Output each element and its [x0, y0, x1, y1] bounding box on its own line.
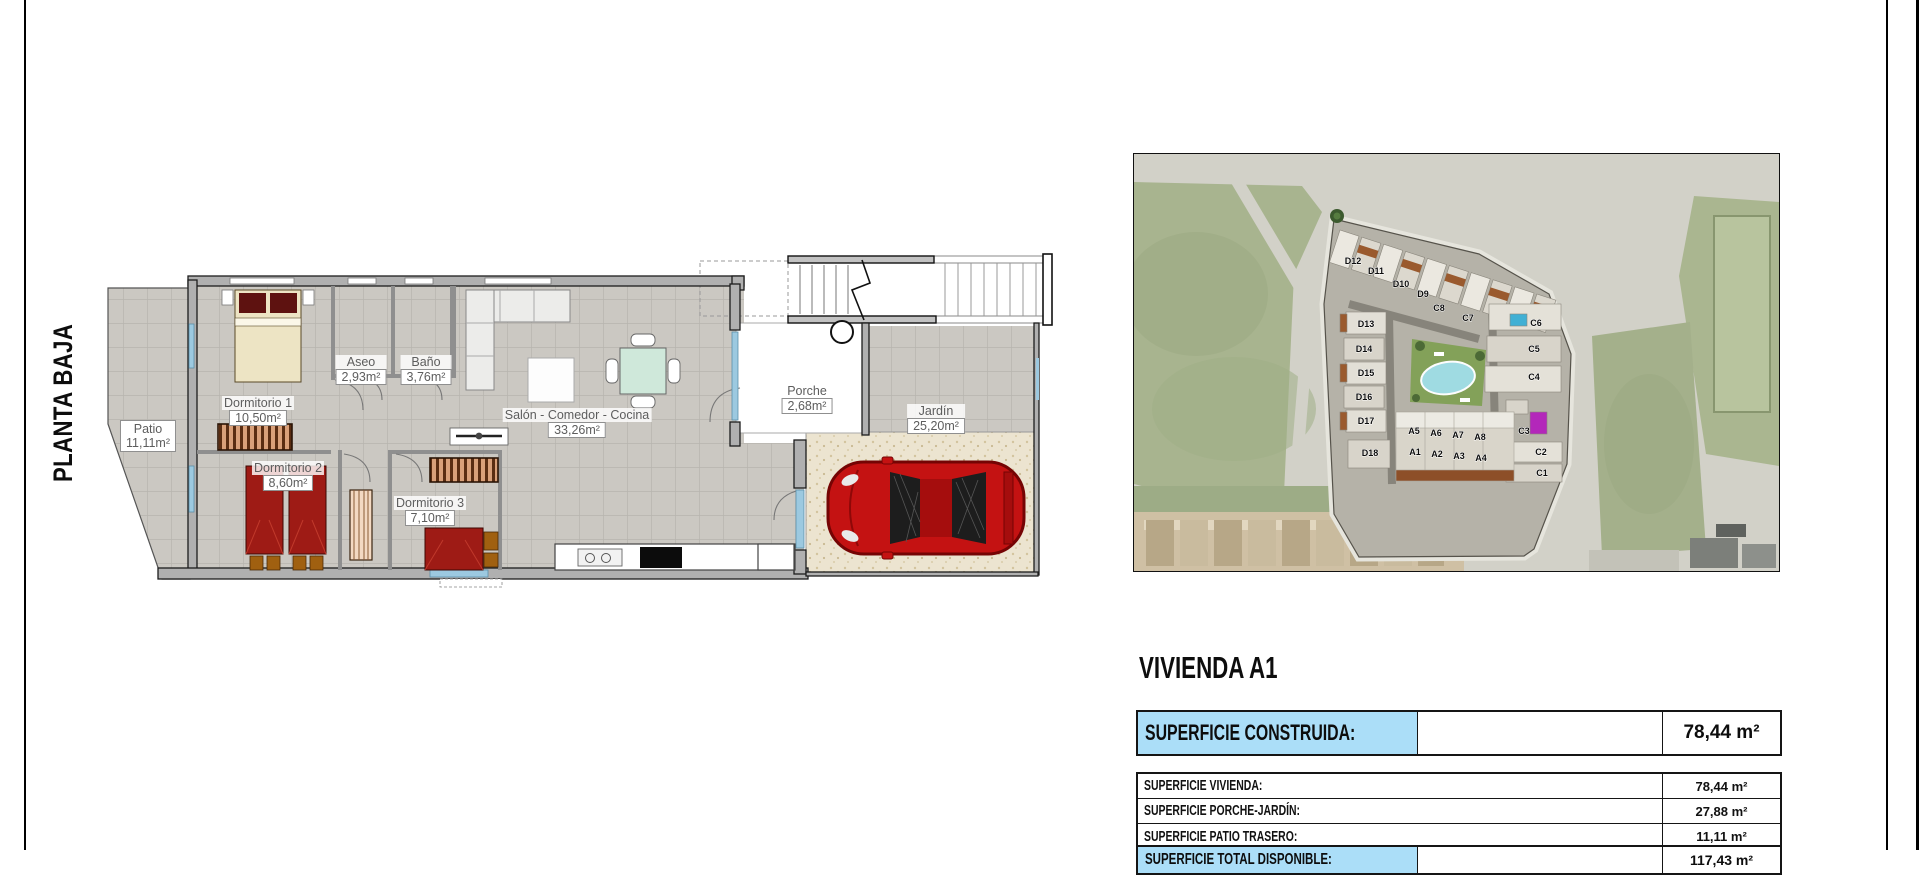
- svg-text:A6: A6: [1430, 428, 1442, 438]
- svg-text:A5: A5: [1408, 426, 1420, 436]
- svg-text:C1: C1: [1536, 468, 1548, 478]
- small-pool: [1510, 314, 1527, 326]
- svg-text:D17: D17: [1358, 416, 1375, 426]
- room-label-bano: Baño3,76m²: [401, 355, 452, 385]
- superficie-construida-row: SUPERFICIE CONSTRUIDA: 78,44 m²: [1136, 710, 1782, 756]
- magenta-building: [1530, 412, 1547, 434]
- wardrobe-icon: [430, 458, 498, 482]
- svg-text:D11: D11: [1368, 266, 1384, 276]
- svg-text:C8: C8: [1433, 303, 1445, 313]
- bed-double-icon: [222, 290, 314, 382]
- svg-text:D10: D10: [1393, 279, 1410, 289]
- stove-icon: [640, 547, 682, 568]
- superficie-total-value: 117,43 m²: [1662, 847, 1780, 873]
- bed-single-icon: [425, 528, 498, 570]
- svg-text:D9: D9: [1417, 289, 1429, 299]
- surface-breakdown-table: SUPERFICIE VIVIENDA: 78,44 m² SUPERFICIE…: [1136, 772, 1782, 851]
- window-blue: [189, 324, 194, 368]
- room-label-patio: Patio11,11m²: [120, 420, 176, 452]
- site-plan-aerial-image: D12 D11 D10 D9 C8 C7 D13 D14 D15 D16 D17…: [1133, 153, 1780, 572]
- room-label-aseo: Aseo2,93m²: [336, 355, 387, 385]
- table-row: SUPERFICIE VIVIENDA: 78,44 m²: [1138, 774, 1780, 799]
- svg-text:D15: D15: [1358, 368, 1375, 378]
- courtyard: [1410, 339, 1486, 406]
- wardrobe-icon: [218, 424, 292, 450]
- svg-text:A7: A7: [1452, 430, 1464, 440]
- room-label-dormitorio2: Dormitorio 28,60m²: [252, 461, 324, 491]
- row-spacer: [1418, 712, 1662, 754]
- svg-text:A1: A1: [1409, 447, 1421, 457]
- svg-text:C6: C6: [1530, 318, 1542, 328]
- svg-text:D12: D12: [1345, 256, 1362, 266]
- svg-text:D13: D13: [1358, 319, 1375, 329]
- svg-text:C3: C3: [1518, 426, 1530, 436]
- svg-text:D18: D18: [1362, 448, 1379, 458]
- drawing-sheet: { "sheet": { "plan_label": "PLANTA BAJA"…: [0, 0, 1920, 850]
- room-label-dormitorio3: Dormitorio 37,10m²: [394, 496, 466, 526]
- car-icon: [828, 457, 1024, 559]
- frame-line-left: [24, 0, 26, 850]
- column: [831, 321, 853, 343]
- svg-text:D16: D16: [1356, 392, 1373, 402]
- kitchen-icon: [555, 544, 795, 570]
- svg-text:C7: C7: [1462, 313, 1474, 323]
- svg-text:A4: A4: [1475, 453, 1487, 463]
- superficie-total-label: SUPERFICIE TOTAL DISPONIBLE:: [1138, 847, 1418, 873]
- fridge-icon: [758, 544, 794, 570]
- plan-level-title: PLANTA BAJA: [48, 324, 79, 482]
- frame-line-right-inner: [1886, 0, 1888, 850]
- room-label-jardin: Jardín25,20m²: [907, 404, 965, 434]
- table-row: SUPERFICIE PORCHE-JARDÍN: 27,88 m²: [1138, 799, 1780, 824]
- svg-text:C5: C5: [1528, 344, 1540, 354]
- superficie-construida-label: SUPERFICIE CONSTRUIDA:: [1138, 712, 1418, 754]
- svg-text:A8: A8: [1474, 432, 1486, 442]
- svg-text:A2: A2: [1431, 449, 1443, 459]
- room-label-porche: Porche2,68m²: [782, 384, 833, 414]
- tv-unit-icon: [450, 428, 508, 445]
- shelving-icon: [350, 490, 372, 560]
- frame-line-right-outer: [1916, 0, 1919, 850]
- svg-text:C4: C4: [1528, 372, 1540, 382]
- svg-text:A3: A3: [1453, 451, 1465, 461]
- unit-title: VIVIENDA A1: [1139, 650, 1331, 686]
- svg-text:D14: D14: [1356, 344, 1373, 354]
- superficie-construida-value: 78,44 m²: [1662, 712, 1780, 754]
- room-label-salon: Salón - Comedor - Cocina33,26m²: [503, 408, 652, 438]
- room-label-dormitorio1: Dormitorio 110,50m²: [222, 396, 294, 426]
- svg-text:C2: C2: [1535, 447, 1547, 457]
